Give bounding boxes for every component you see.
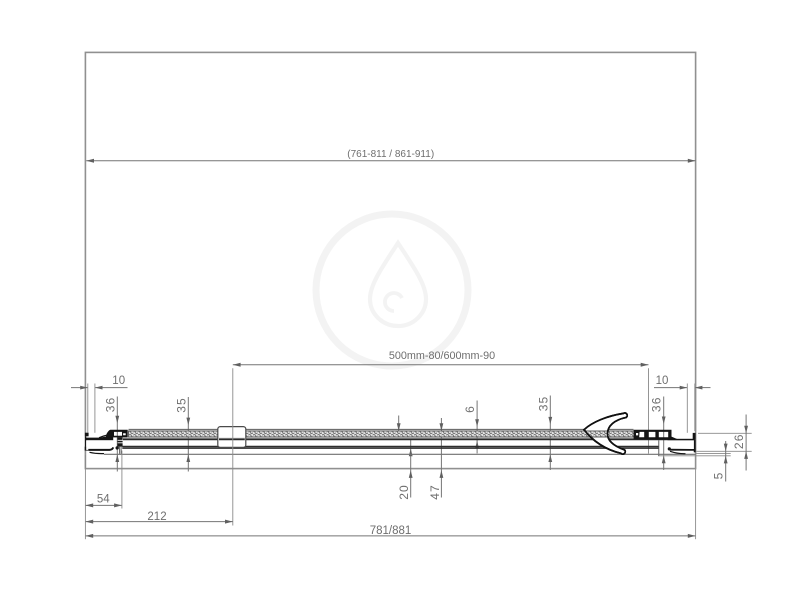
svg-text:781/881: 781/881 <box>370 525 412 537</box>
svg-text:54: 54 <box>97 493 110 505</box>
svg-text:26: 26 <box>732 434 746 450</box>
svg-text:47: 47 <box>428 484 442 500</box>
svg-text:5: 5 <box>712 472 726 480</box>
svg-text:212: 212 <box>147 511 166 523</box>
svg-text:6: 6 <box>463 405 477 413</box>
svg-text:500mm-80/600mm-90: 500mm-80/600mm-90 <box>389 350 495 362</box>
svg-text:20: 20 <box>397 484 411 500</box>
svg-text:35: 35 <box>536 396 550 412</box>
svg-text:10: 10 <box>656 375 669 387</box>
svg-text:36: 36 <box>650 397 664 413</box>
svg-text:35: 35 <box>175 397 189 413</box>
svg-text:(761-811 / 861-911): (761-811 / 861-911) <box>347 149 434 160</box>
svg-text:10: 10 <box>112 375 125 387</box>
svg-text:36: 36 <box>103 397 117 413</box>
